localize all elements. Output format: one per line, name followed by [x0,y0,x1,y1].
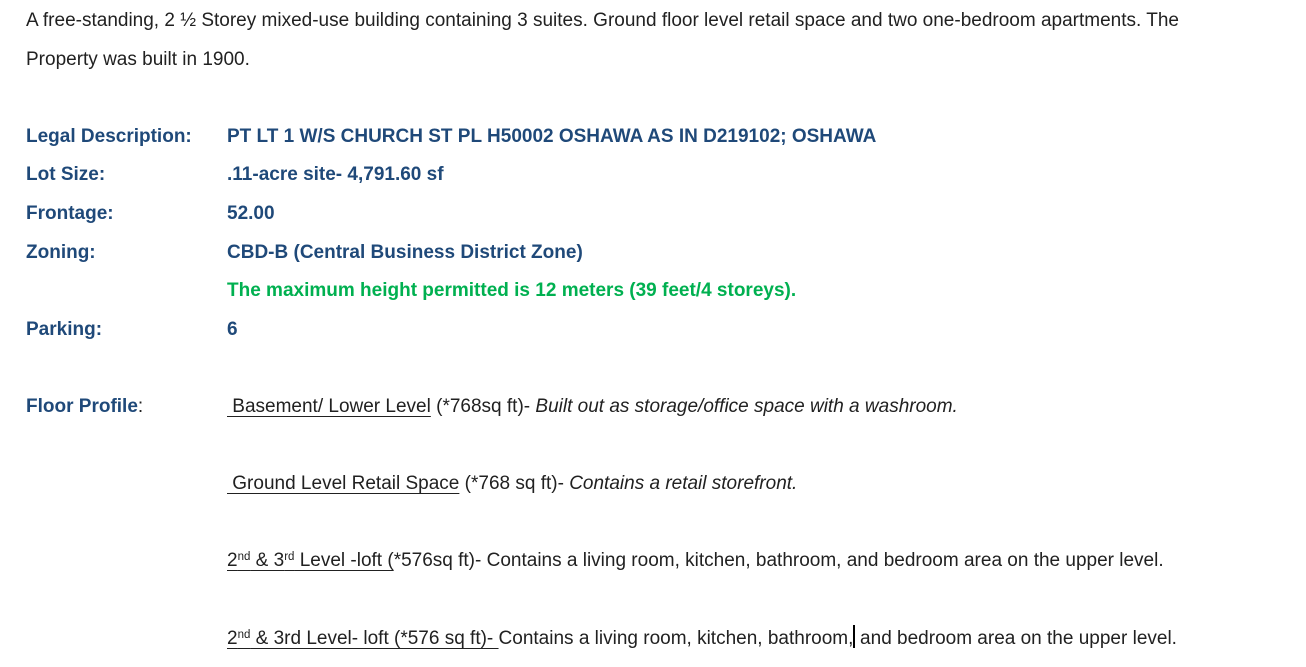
floor-entry-basement: Basement/ Lower Level (*768sq ft)- Built… [227,396,958,417]
floor-entry-2nd-3rd-loft-b: 2nd & 3rd Level- loft (*576 sq ft)- Cont… [227,628,1177,649]
field-row-lot-size: Lot Size:.11-acre site- 4,791.60 sf [26,156,1298,195]
intro-line-2: Property was built in 1900. [26,41,1298,80]
floor-entry-ground-retail: Ground Level Retail Space (*768 sq ft)- … [227,473,797,494]
floor-profile-label-cell: Floor Profile: [26,388,227,427]
zoning-height-note: The maximum height permitted is 12 meter… [227,280,796,301]
field-label-parking: Parking: [26,311,227,350]
field-value-legal-description: PT LT 1 W/S CHURCH ST PL H50002 OSHAWA A… [227,126,876,147]
ordinal-superscript: rd [284,551,294,563]
floor-entry-upper-b-description-start: Contains a living room, kitchen, bathroo… [499,628,854,649]
field-value-frontage: 52.00 [227,203,275,224]
field-row-zoning-height-note: The maximum height permitted is 12 meter… [26,272,1298,311]
floor-profile-row-basement: Floor Profile: Basement/ Lower Level (*7… [26,388,1298,427]
field-label-lot-size: Lot Size: [26,156,227,195]
field-label-zoning: Zoning: [26,234,227,273]
floor-profile-row-ground: Ground Level Retail Space (*768 sq ft)- … [26,465,1298,504]
floor-entry-upper-a-description: *576sq ft)- Contains a living room, kitc… [394,550,1164,571]
field-row-legal-description: Legal Description:PT LT 1 W/S CHURCH ST … [26,118,1298,157]
blank-line [26,504,1298,543]
intro-line-1: A free-standing, 2 ½ Storey mixed-use bu… [26,2,1298,41]
heading-text: Level -loft ( [294,550,393,571]
heading-text: & 3rd Level- loft (*576 sq ft)- [250,628,498,649]
floor-entry-2nd-3rd-loft-a: 2nd & 3rd Level -loft (*576sq ft)- Conta… [227,550,1164,571]
field-label-frontage: Frontage: [26,195,227,234]
floor-entry-ground-heading: Ground Level Retail Space [227,473,459,494]
floor-profile-row-upper-a: 2nd & 3rd Level -loft (*576sq ft)- Conta… [26,542,1298,581]
floor-entry-upper-b-heading: 2nd & 3rd Level- loft (*576 sq ft)- [227,628,499,649]
floor-profile-label: Floor Profile [26,396,138,417]
blank-line [26,79,1298,118]
ordinal-superscript: nd [238,629,251,641]
ordinal-superscript: nd [238,551,251,563]
property-document[interactable]: A free-standing, 2 ½ Storey mixed-use bu… [0,0,1306,667]
blank-line [26,581,1298,620]
field-label-legal-description: Legal Description: [26,118,227,157]
floor-entry-basement-description: Built out as storage/office space with a… [535,396,957,417]
floor-entry-ground-description: Contains a retail storefront. [569,473,797,494]
field-row-parking: Parking:6 [26,311,1298,350]
floor-entry-upper-a-heading: 2nd & 3rd Level -loft ( [227,550,394,571]
heading-text: 2 [227,550,238,571]
field-value-parking: 6 [227,319,238,340]
field-row-zoning: Zoning:CBD-B (Central Business District … [26,234,1298,273]
floor-entry-basement-heading: Basement/ Lower Level [227,396,431,417]
heading-text: 2 [227,628,238,649]
floor-profile-colon: : [138,396,143,417]
field-row-frontage: Frontage:52.00 [26,195,1298,234]
field-value-lot-size: .11-acre site- 4,791.60 sf [227,164,444,185]
heading-text: & 3 [250,550,284,571]
field-value-zoning: CBD-B (Central Business District Zone) [227,242,583,263]
floor-profile-row-upper-b: 2nd & 3rd Level- loft (*576 sq ft)- Cont… [26,620,1298,659]
blank-line [26,349,1298,388]
floor-entry-basement-size: (*768sq ft)- [431,396,536,417]
floor-entry-upper-b-description-end: and bedroom area on the upper level. [855,628,1177,649]
floor-entry-ground-size: (*768 sq ft)- [459,473,569,494]
blank-line [26,427,1298,466]
